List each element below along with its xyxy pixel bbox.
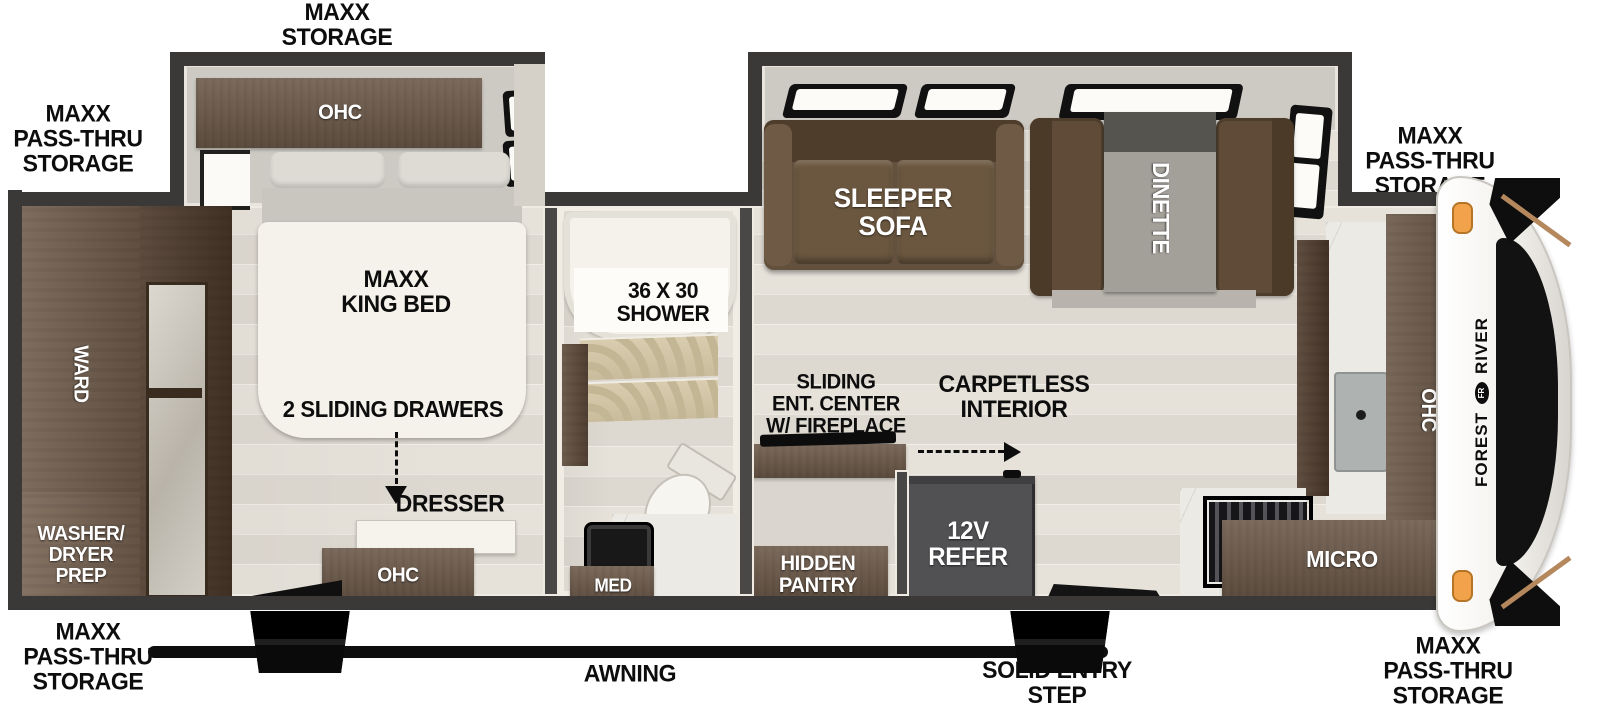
bedroom-ohc-label: OHC	[318, 102, 362, 124]
pillow	[270, 152, 385, 188]
marker-light-icon	[1452, 570, 1473, 602]
label-passthru-bottom-right: MAXX PASS-THRU STORAGE	[1383, 635, 1512, 710]
wardrobe-mirror-bar	[146, 388, 202, 398]
bedroom-slide-endwall	[514, 64, 545, 206]
marker-light-icon	[1452, 202, 1473, 234]
linen-shelf	[580, 378, 718, 423]
sofa-window-icon	[782, 84, 908, 118]
brand-word: RIVER	[1472, 317, 1492, 374]
arrow-right-icon	[1004, 442, 1021, 462]
hidden-pantry-label: HIDDEN PANTRY	[779, 553, 857, 597]
label-passthru-bottom-left: MAXX PASS-THRU STORAGE	[23, 621, 152, 696]
ward-label: WARD	[70, 345, 91, 402]
refer-label: 12V REFER	[928, 518, 1007, 570]
wardrobe-mirror	[146, 282, 208, 598]
ent-center-label: SLIDING ENT. CENTER W/ FIREPLACE	[766, 371, 906, 436]
solid-entry-step	[1006, 611, 1114, 673]
shower-label: 36 X 30 SHOWER	[617, 280, 710, 326]
bedroom-slide-wall	[170, 52, 545, 66]
washer-dryer-label: WASHER/ DRYER PREP	[38, 524, 125, 586]
entry-stub-wall	[895, 470, 909, 596]
carpetless-label: CARPETLESS INTERIOR	[938, 373, 1089, 423]
dinette-label: DINETTE	[1148, 162, 1172, 254]
bedroom-slide-wall	[170, 52, 184, 206]
pillow	[398, 152, 510, 188]
floorplan-canvas: MAXX STORAGE MAXX PASS-THRU STORAGE MAXX…	[0, 0, 1600, 728]
living-slide-wall	[748, 52, 762, 206]
label-maxx-storage: MAXX STORAGE	[282, 1, 393, 51]
forest-river-badge-icon: FR	[1475, 382, 1489, 404]
label-awning: AWNING	[584, 663, 676, 688]
label-passthru-left: MAXX PASS-THRU STORAGE	[13, 103, 142, 178]
bedroom-entry-step	[246, 611, 354, 673]
dinette-bench	[1030, 118, 1104, 296]
micro-label: MICRO	[1306, 548, 1378, 572]
arrow-down-icon	[395, 432, 398, 484]
linen-shelf	[580, 334, 718, 381]
bedroom-window-icon	[200, 150, 250, 210]
sleeper-sofa-label: SLEEPER SOFA	[834, 184, 952, 240]
dinette-bench	[1216, 118, 1294, 296]
living-slide-wall	[748, 52, 1352, 66]
king-bed-label: MAXX KING BED	[341, 268, 451, 318]
brand-word: FOREST	[1472, 412, 1492, 487]
top-wall	[8, 192, 174, 206]
arrow-right-icon	[918, 450, 1004, 453]
dresser-label: DRESSER	[396, 493, 505, 518]
bedroom-ohc-bottom-label: OHC	[377, 566, 419, 587]
bed-blanket	[262, 188, 522, 226]
kitchen-sink	[1334, 372, 1388, 472]
top-wall	[543, 192, 751, 206]
med-label: MED	[594, 577, 631, 596]
sofa-window-icon	[914, 84, 1016, 118]
dinette-platform	[1052, 290, 1256, 308]
bathroom-wall	[543, 206, 559, 596]
bottom-wall	[8, 596, 1474, 610]
rear-wall	[8, 190, 22, 610]
front-cap: FOREST FR RIVER	[1436, 176, 1568, 628]
bathroom-wall	[738, 206, 754, 596]
kitchen-tall-cabinet	[1297, 240, 1329, 496]
bathroom-cabinet	[562, 344, 588, 466]
forest-river-logo: FOREST FR RIVER	[1471, 252, 1493, 552]
living-slide-wall	[1338, 52, 1352, 206]
pantry-interior	[748, 480, 894, 548]
sliding-drawers-label: 2 SLIDING DRAWERS	[283, 398, 503, 422]
entertainment-center	[742, 444, 906, 478]
